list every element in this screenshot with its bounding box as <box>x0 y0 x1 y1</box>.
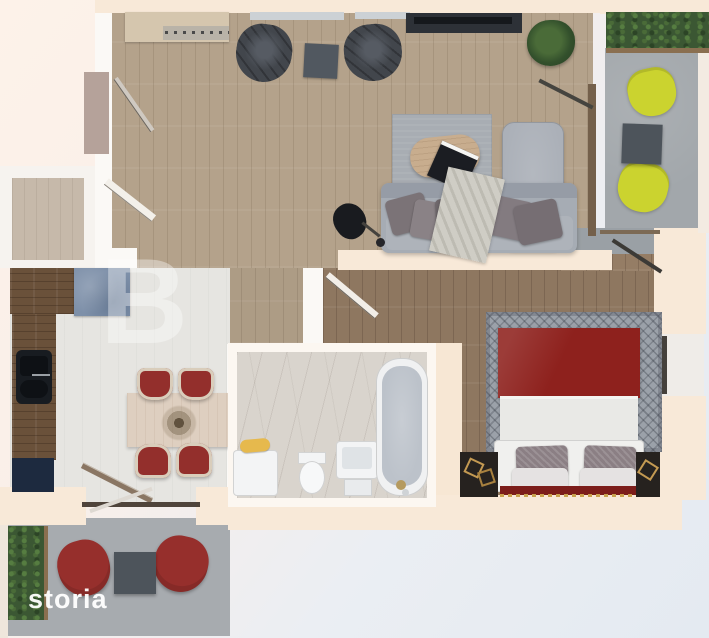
wall-lower-left-edge <box>0 525 8 638</box>
wall-bath-bedroom-divider <box>432 343 462 505</box>
bed-blanket-red <box>498 328 640 398</box>
sink-basin <box>342 447 372 469</box>
wall-lower-balcony-right <box>196 487 230 525</box>
dining-chair-bottom-right <box>176 443 212 477</box>
toilet-bowl <box>299 461 325 494</box>
bathtub-faucet-chrome <box>402 489 409 496</box>
balcony-right-table <box>621 123 662 164</box>
kitchen-navy-appliance <box>12 458 54 492</box>
kitchen-faucet <box>32 374 50 376</box>
entry-hall-floor <box>12 178 84 260</box>
floor-plan-scene: B storia <box>0 0 709 638</box>
tv-screen <box>414 17 512 24</box>
bathtub-interior <box>382 366 422 486</box>
balcony-lower-table <box>114 552 156 594</box>
dining-centerpiece-plant <box>160 402 198 444</box>
balcony-right-planter-edge <box>606 48 709 53</box>
kitchen-corner-counter <box>10 268 74 314</box>
bed-sheet-white <box>500 396 638 445</box>
washing-machine <box>233 450 278 496</box>
bed-frame-gold-trim <box>500 494 638 497</box>
dining-chair-top-right <box>178 368 214 400</box>
kitchen-sink-basin-top <box>20 356 48 376</box>
wall-lower-balcony-left <box>0 487 86 525</box>
dining-chair-top-left <box>137 368 173 400</box>
balcony-bedroom-threshold <box>600 230 660 234</box>
storia-logo: storia <box>28 586 108 613</box>
wall-hall-bedroom-divider <box>303 268 323 344</box>
window-sill-top-2 <box>355 12 410 19</box>
dining-chair-bottom-left <box>135 444 171 478</box>
side-table-small <box>303 43 339 79</box>
balcony-right-hedge-planter <box>606 12 709 50</box>
faint-watermark-letter: B <box>100 240 188 362</box>
sink-vanity-stand <box>344 479 372 496</box>
entry-door-panel <box>84 72 109 154</box>
window-sill-top-1 <box>250 12 344 20</box>
hallway-floor <box>227 268 303 344</box>
kitchen-sink-basin-bottom <box>20 380 48 398</box>
floor-lamp-base <box>376 238 385 247</box>
sideboard-decor-strip <box>163 26 229 40</box>
